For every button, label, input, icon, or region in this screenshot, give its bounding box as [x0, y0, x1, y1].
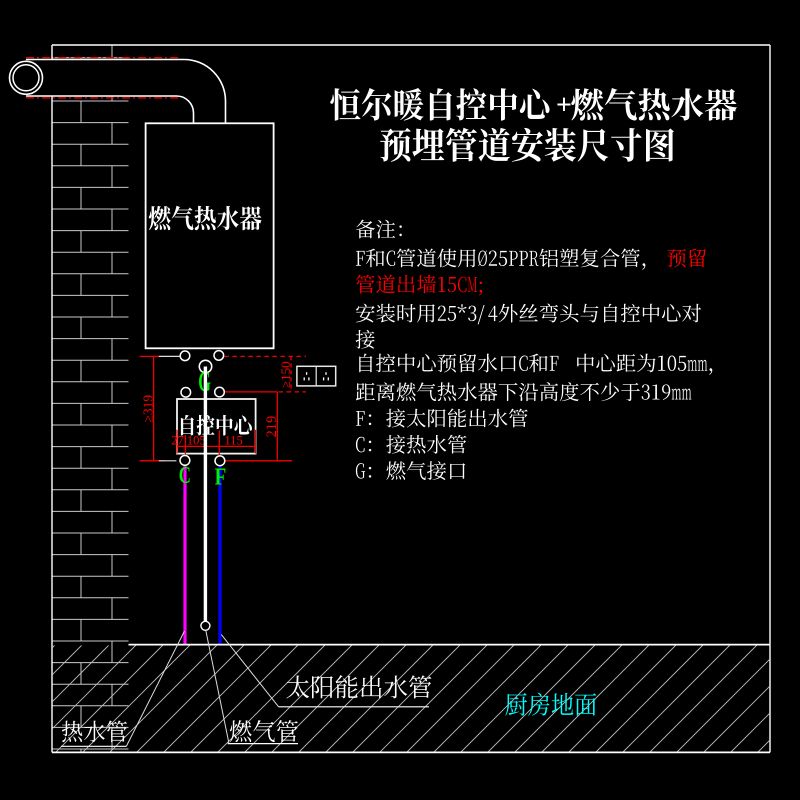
- svg-text:+: +: [556, 90, 572, 121]
- svg-text:≥319: ≥319: [140, 395, 155, 423]
- svg-text:27 105: 27 105: [171, 434, 205, 448]
- svg-text:≥150: ≥150: [278, 361, 293, 388]
- svg-text:219: 219: [264, 416, 280, 438]
- svg-text:F: F: [215, 462, 227, 490]
- svg-text:C: C: [179, 463, 191, 488]
- svg-text:115: 115: [225, 434, 243, 448]
